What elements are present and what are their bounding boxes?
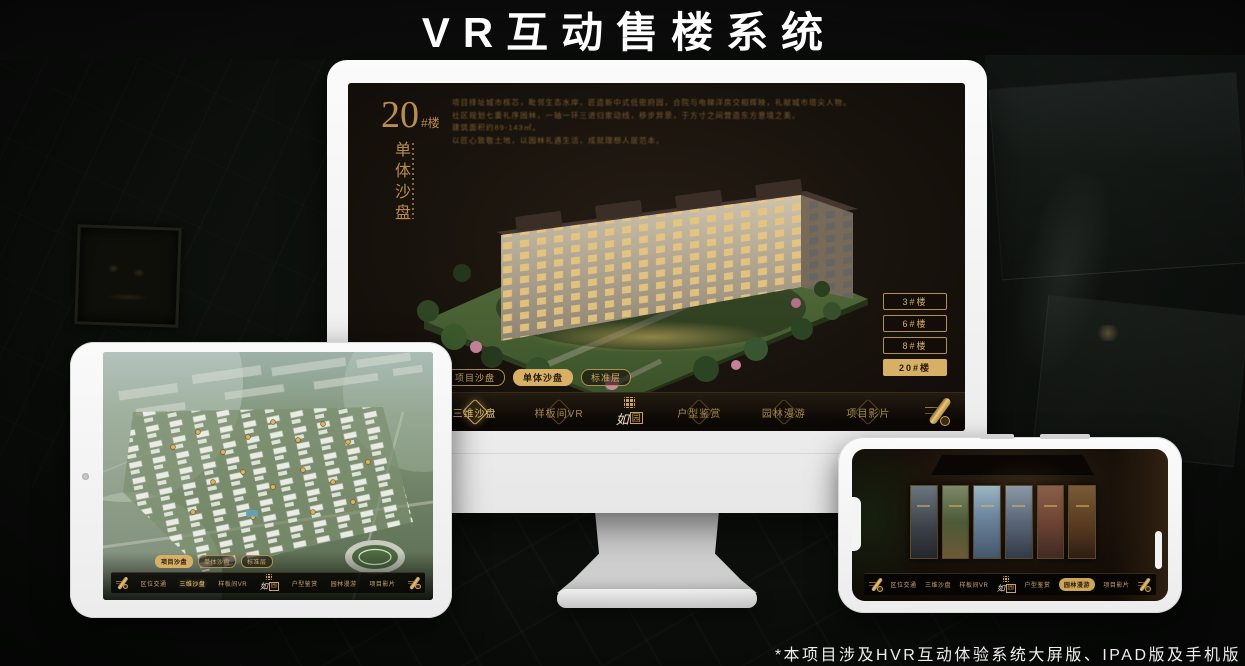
background-gold-glyph (1095, 325, 1121, 341)
phone-volume-button (980, 434, 1014, 439)
tower-button-group: 3#楼 6#楼 8#楼 20#楼 (883, 293, 947, 376)
ipad-subtab-project-sandbox[interactable]: 项目沙盘 (155, 555, 193, 568)
scene-panel[interactable] (973, 485, 1001, 559)
subtab-standard-floor[interactable]: 标准层 (581, 369, 631, 386)
logo-char: 如 (260, 581, 268, 592)
background-photo (989, 72, 1245, 281)
background-photo-collage (985, 55, 1245, 455)
scene-panel[interactable] (1068, 485, 1096, 559)
phone-nav-item[interactable]: 项目影片 (1103, 580, 1129, 589)
nav-item-showroom-vr[interactable]: 样板间VR (531, 396, 587, 428)
seal-icon (624, 397, 635, 408)
ipad-nav-item[interactable]: 样板间VR (218, 579, 247, 588)
building-title-vertical: 单体沙盘 (388, 141, 412, 225)
logo-char: 园 (269, 582, 279, 591)
phone-notch (852, 497, 861, 551)
nav-item-unit-plans[interactable]: 户型鉴赏 (671, 396, 727, 428)
sandbox-subtabs: 项目沙盘 单体沙盘 标准层 (445, 369, 631, 386)
title-decor-dashes (412, 143, 414, 219)
nav-item-label: 园林漫游 (762, 405, 806, 420)
phone: 区位交通 三维沙盘 样板间VR 如园 户型鉴赏 园林漫游 项目影片 (838, 437, 1182, 613)
nav-item-label: 三维沙盘 (453, 405, 497, 420)
description-line: 社区规划七重礼序园林，一轴一环三进归家动线，移步异景，于方寸之间营造东方意境之美… (452, 110, 882, 123)
nav-item-garden-roam[interactable]: 园林漫游 (756, 396, 812, 428)
phone-nav-item[interactable]: 园林漫游 (1059, 578, 1095, 591)
building-title: 20#楼 (381, 96, 440, 134)
logo-char: 如 (616, 409, 629, 428)
phone-nav-item[interactable]: 三维沙盘 (925, 580, 951, 589)
description-line: 建筑面积约89-143㎡。 (452, 122, 882, 135)
background-plaque (74, 224, 181, 328)
ipad-nav-item[interactable]: 区位交通 (141, 579, 167, 588)
logo-char: 园 (630, 412, 643, 424)
phone-nav-item[interactable]: 区位交通 (891, 580, 917, 589)
building-number: 20 (381, 94, 419, 136)
scene-panel[interactable] (910, 485, 938, 559)
ipad-screen: 项目沙盘 单体沙盘 标准层 区位交通 三维沙盘 样板间VR 如园 户型鉴赏 园林… (103, 352, 433, 600)
monitor-stand-base (557, 589, 757, 608)
phone-nav-item[interactable]: 样板间VR (960, 580, 989, 589)
building-number-unit: #楼 (421, 116, 440, 130)
ipad-nav-item[interactable]: 园林漫游 (331, 579, 357, 588)
building-render[interactable] (406, 153, 886, 405)
subtab-project-sandbox[interactable]: 项目沙盘 (445, 369, 505, 386)
seal-icon (1003, 576, 1009, 582)
scene-panel[interactable] (1037, 485, 1065, 559)
background-river (993, 163, 1158, 386)
scroll-menu-icon[interactable] (116, 577, 128, 590)
scene-gallery (910, 485, 1096, 559)
ipad-nav-item[interactable]: 户型鉴赏 (292, 579, 318, 588)
ipad-subtab-single-sandbox[interactable]: 单体沙盘 (198, 555, 236, 568)
description-line: 以匠心致敬土地，以园林礼遇生活，成就理想人居范本。 (452, 135, 882, 148)
nav-item-label: 户型鉴赏 (677, 405, 721, 420)
scroll-menu-icon[interactable] (1138, 578, 1151, 592)
ipad-nav-item[interactable]: 项目影片 (369, 579, 395, 588)
monitor-stand-neck (557, 511, 757, 593)
ipad: 项目沙盘 单体沙盘 标准层 区位交通 三维沙盘 样板间VR 如园 户型鉴赏 园林… (70, 342, 452, 618)
scene-panel[interactable] (942, 485, 970, 559)
scroll-menu-icon[interactable] (925, 398, 951, 426)
page-title: VR互动售楼系统 (0, 0, 1245, 58)
phone-navbar: 区位交通 三维沙盘 样板间VR 如园 户型鉴赏 园林漫游 项目影片 (864, 573, 1156, 595)
stage: VR互动售楼系统 20#楼 单体沙盘 项目择址城市核芯，毗邻生态水岸，匠造新中式… (0, 0, 1245, 666)
phone-nav-item[interactable]: 户型鉴赏 (1024, 580, 1050, 589)
ipad-subtab-standard-floor[interactable]: 标准层 (241, 555, 273, 568)
ipad-subtabs: 项目沙盘 单体沙盘 标准层 (155, 555, 273, 568)
description-line: 项目择址城市核芯，毗邻生态水岸，匠造新中式低密府园，合院与电梯洋房交相辉映，礼献… (452, 97, 882, 110)
phone-home-pill (1155, 531, 1162, 569)
brand-logo: 如园 (997, 576, 1016, 594)
ipad-navbar: 区位交通 三维沙盘 样板间VR 如园 户型鉴赏 园林漫游 项目影片 (111, 572, 425, 593)
logo-char: 如 (997, 583, 1005, 594)
scene-panel[interactable] (1005, 485, 1033, 559)
scroll-menu-icon[interactable] (869, 578, 882, 592)
building-description: 项目择址城市核芯，毗邻生态水岸，匠造新中式低密府园，合院与电梯洋房交相辉映，礼献… (452, 97, 882, 147)
logo-char: 园 (1006, 584, 1016, 593)
ipad-camera-icon (82, 473, 89, 480)
footnote: *本项目涉及HVR互动体验系统大屏版、IPAD版及手机版 (775, 641, 1241, 665)
brand-logo: 如园 (616, 397, 643, 428)
ipad-nav-item[interactable]: 三维沙盘 (179, 579, 205, 588)
phone-screen: 区位交通 三维沙盘 样板间VR 如园 户型鉴赏 园林漫游 项目影片 (852, 449, 1168, 601)
seal-icon (266, 574, 272, 580)
tower-button-6[interactable]: 6#楼 (883, 315, 947, 332)
nav-item-label: 项目影片 (846, 405, 890, 420)
nav-item-3d-sandbox[interactable]: 三维沙盘 (447, 396, 503, 428)
tower-button-8[interactable]: 8#楼 (883, 337, 947, 354)
tower-button-20[interactable]: 20#楼 (883, 359, 947, 376)
brand-logo: 如园 (260, 574, 279, 592)
tower-button-3[interactable]: 3#楼 (883, 293, 947, 310)
phone-power-button (1040, 434, 1090, 439)
subtab-single-sandbox[interactable]: 单体沙盘 (513, 369, 573, 386)
scroll-menu-icon[interactable] (408, 577, 420, 590)
nav-item-label: 样板间VR (535, 405, 584, 420)
nav-item-project-film[interactable]: 项目影片 (840, 396, 896, 428)
